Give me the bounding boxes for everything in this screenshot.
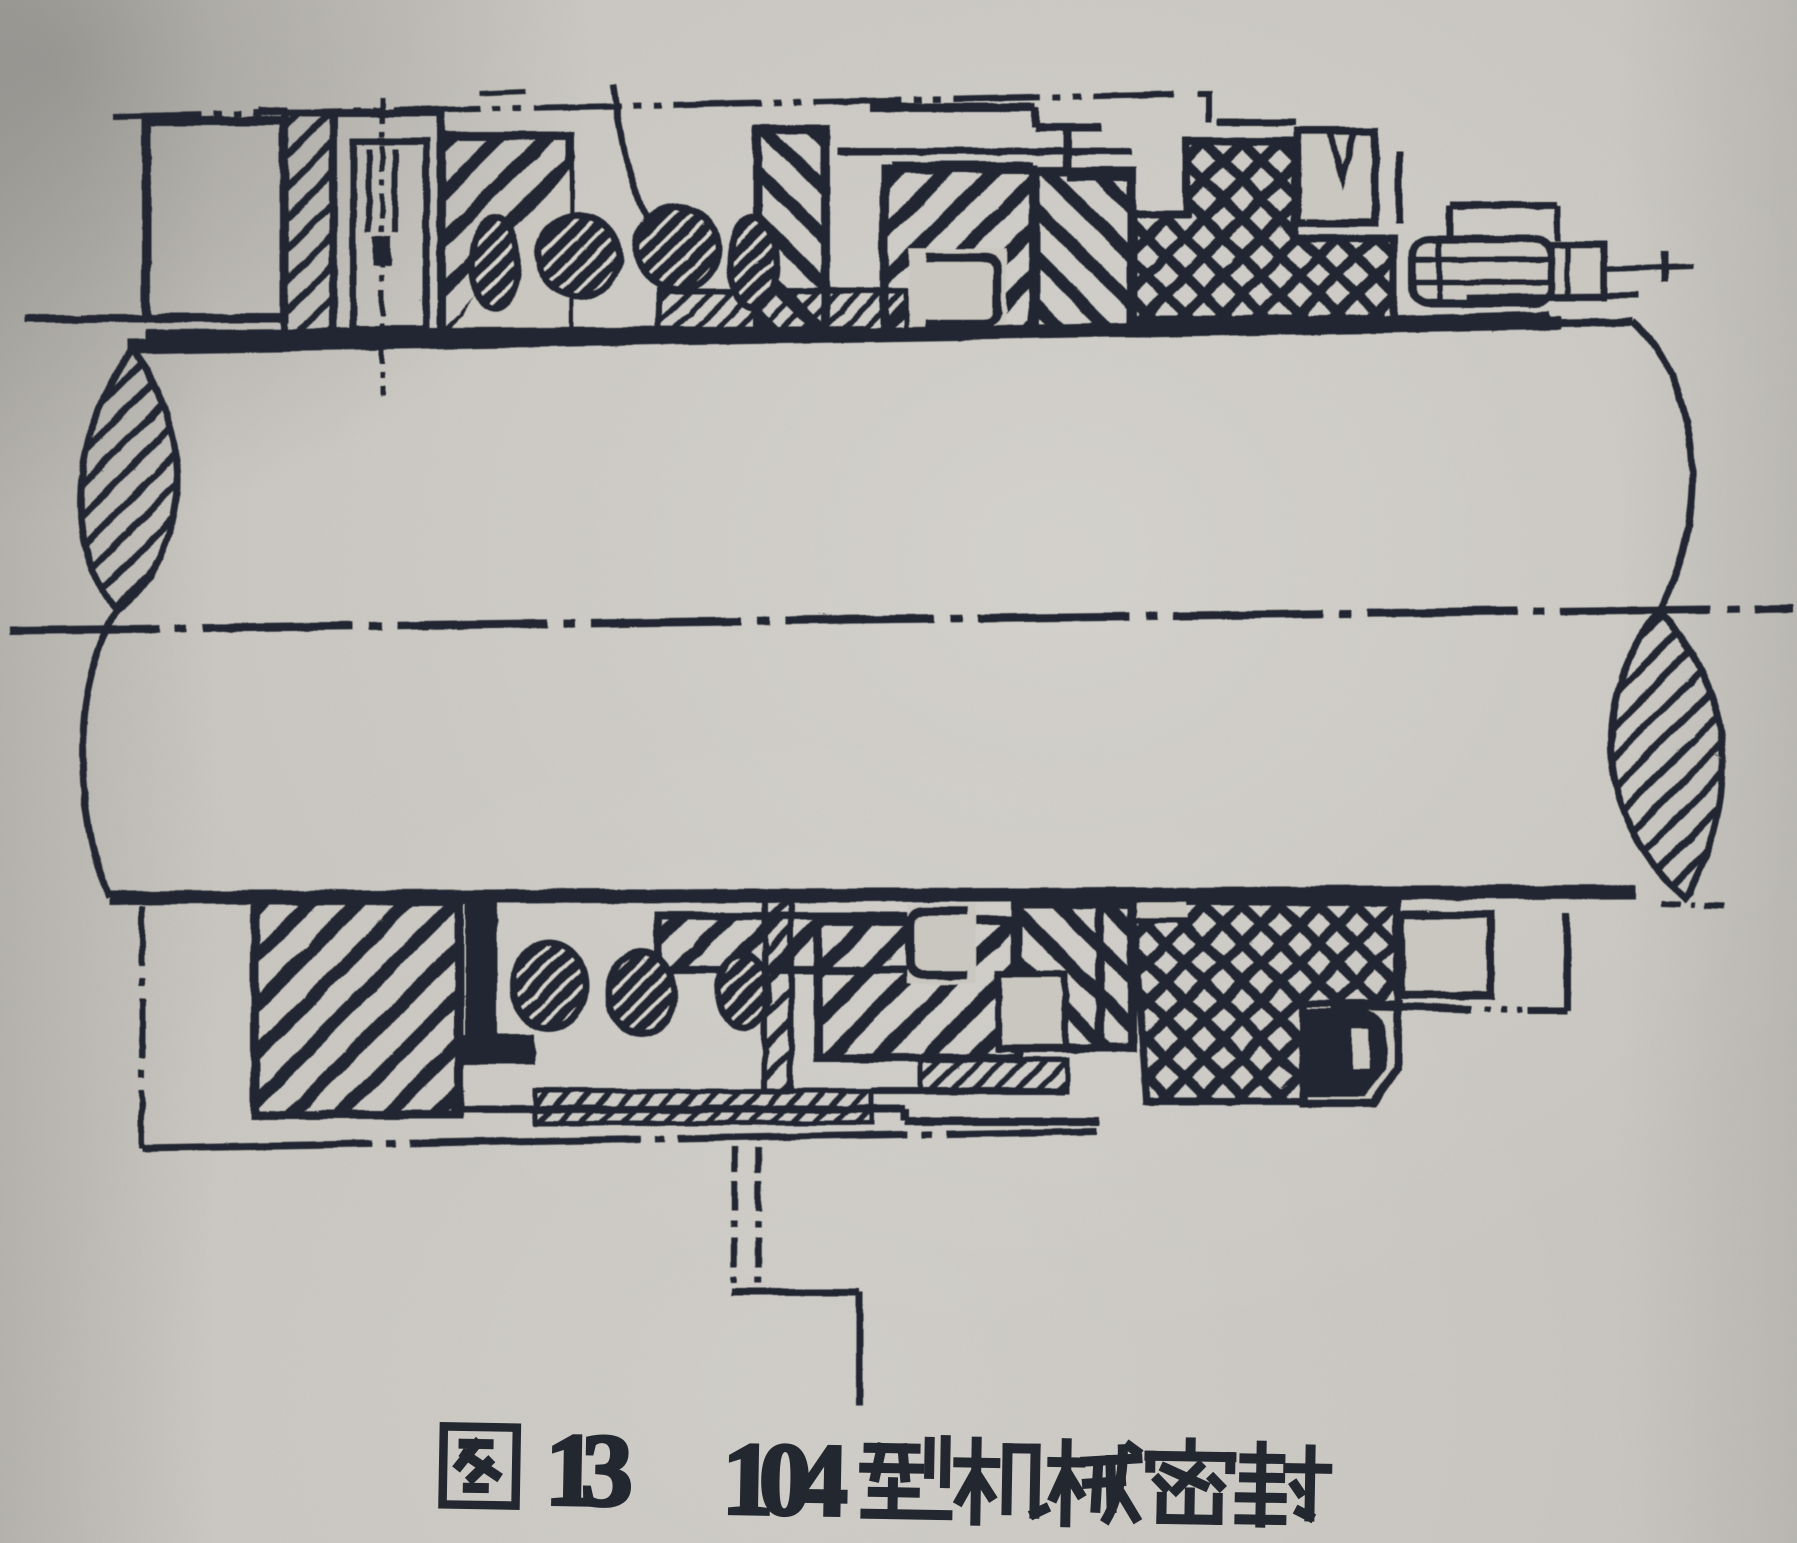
svg-text:13: 13: [544, 1412, 634, 1529]
svg-text:104: 104: [721, 1421, 849, 1538]
